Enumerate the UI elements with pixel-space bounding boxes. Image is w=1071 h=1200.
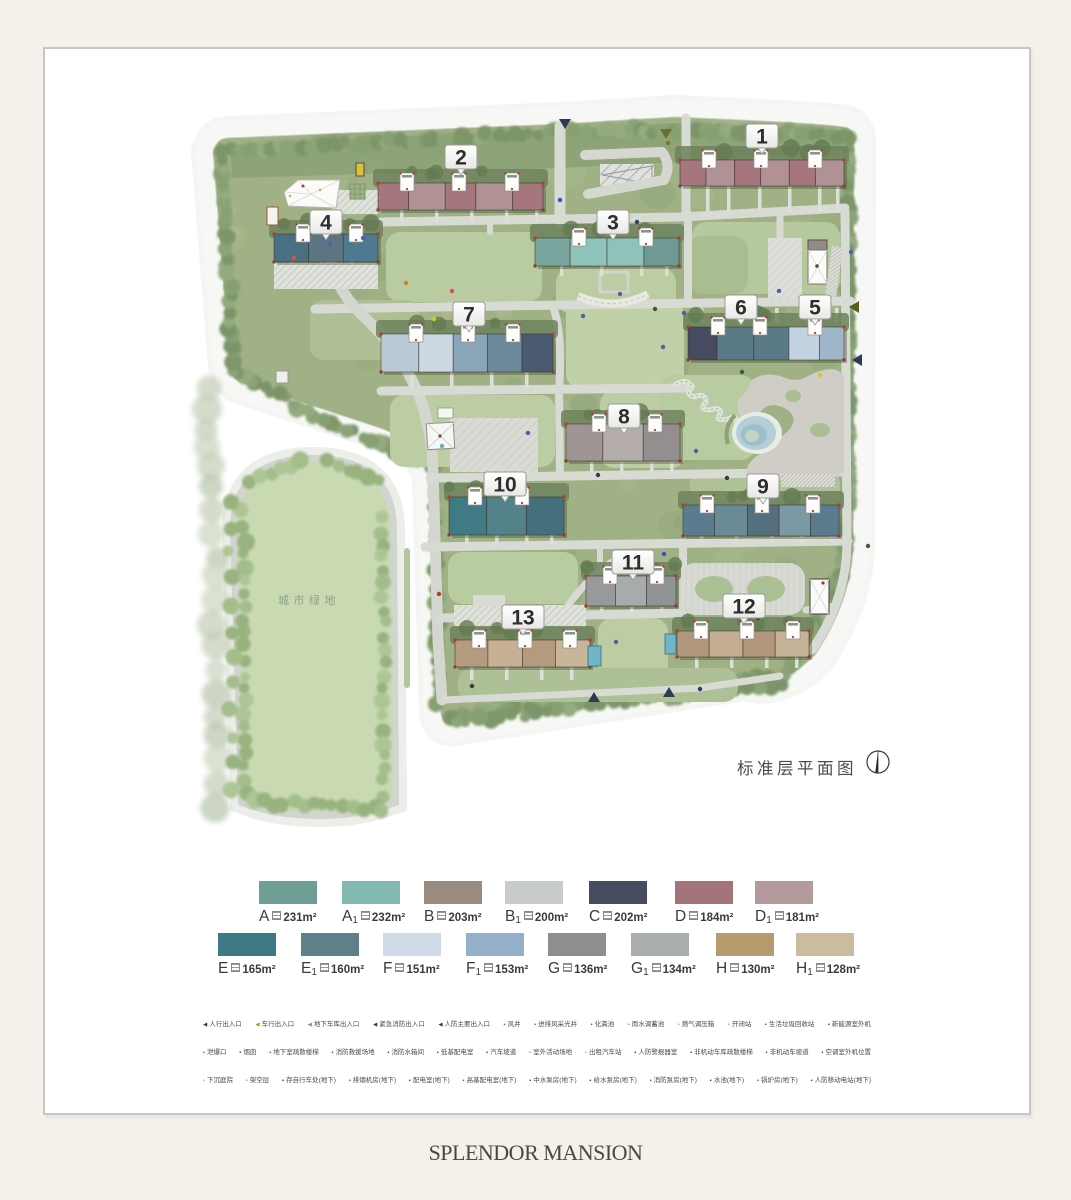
svg-text:11: 11 — [622, 552, 645, 575]
svg-text:2: 2 — [455, 147, 467, 170]
svg-text:13: 13 — [511, 607, 534, 630]
svg-text:6: 6 — [735, 297, 747, 320]
svg-text:1: 1 — [756, 126, 768, 149]
svg-text:7: 7 — [463, 304, 475, 327]
svg-text:8: 8 — [618, 406, 630, 429]
svg-text:10: 10 — [493, 474, 516, 497]
svg-text:12: 12 — [732, 596, 755, 619]
svg-text:4: 4 — [320, 212, 332, 235]
svg-text:3: 3 — [607, 212, 619, 235]
svg-text:城市绿地: 城市绿地 — [278, 593, 340, 607]
svg-text:9: 9 — [757, 476, 769, 499]
svg-text:5: 5 — [809, 297, 821, 320]
